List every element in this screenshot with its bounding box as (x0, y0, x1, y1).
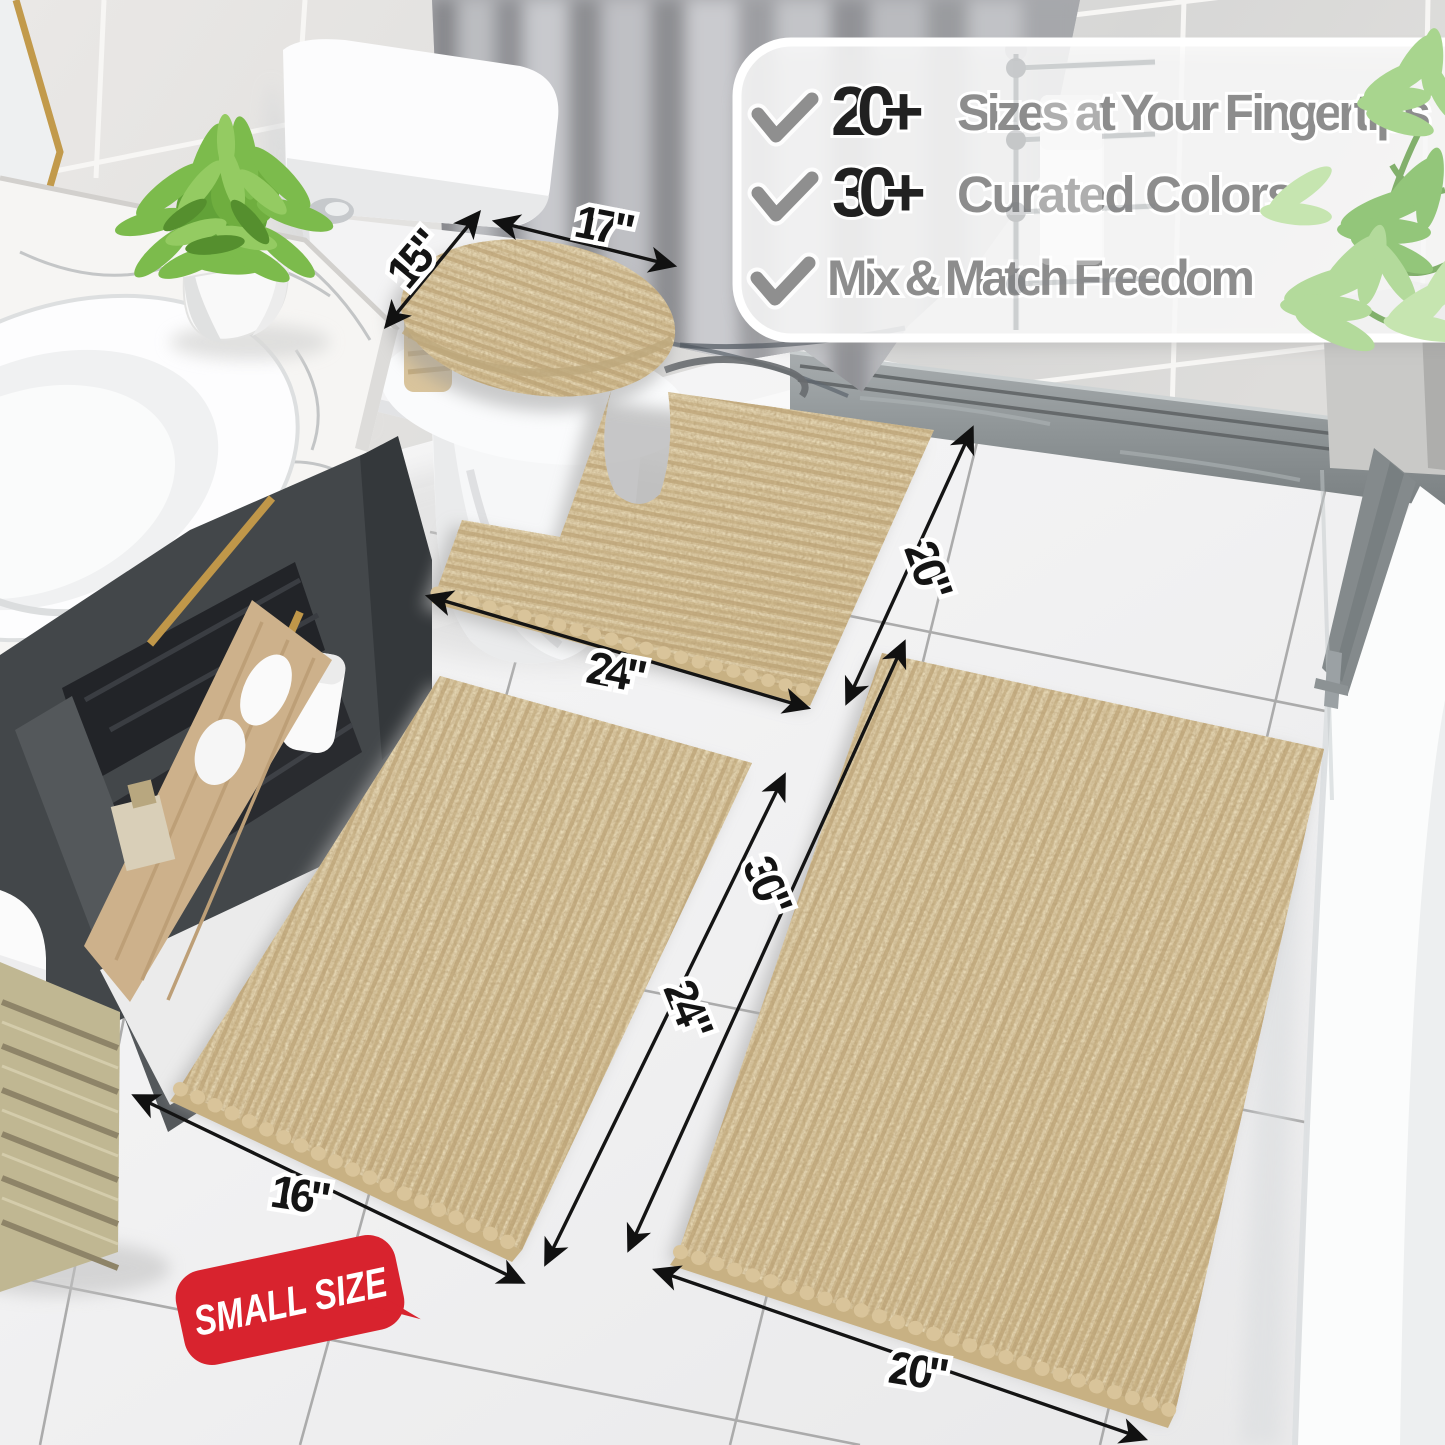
svg-text:20": 20" (885, 1341, 952, 1402)
svg-text:Sizes at Your Fingertips: Sizes at Your Fingertips (957, 84, 1431, 141)
svg-text:30+: 30+ (832, 153, 926, 231)
svg-text:16": 16" (267, 1165, 334, 1226)
svg-text:20+: 20+ (831, 72, 924, 150)
